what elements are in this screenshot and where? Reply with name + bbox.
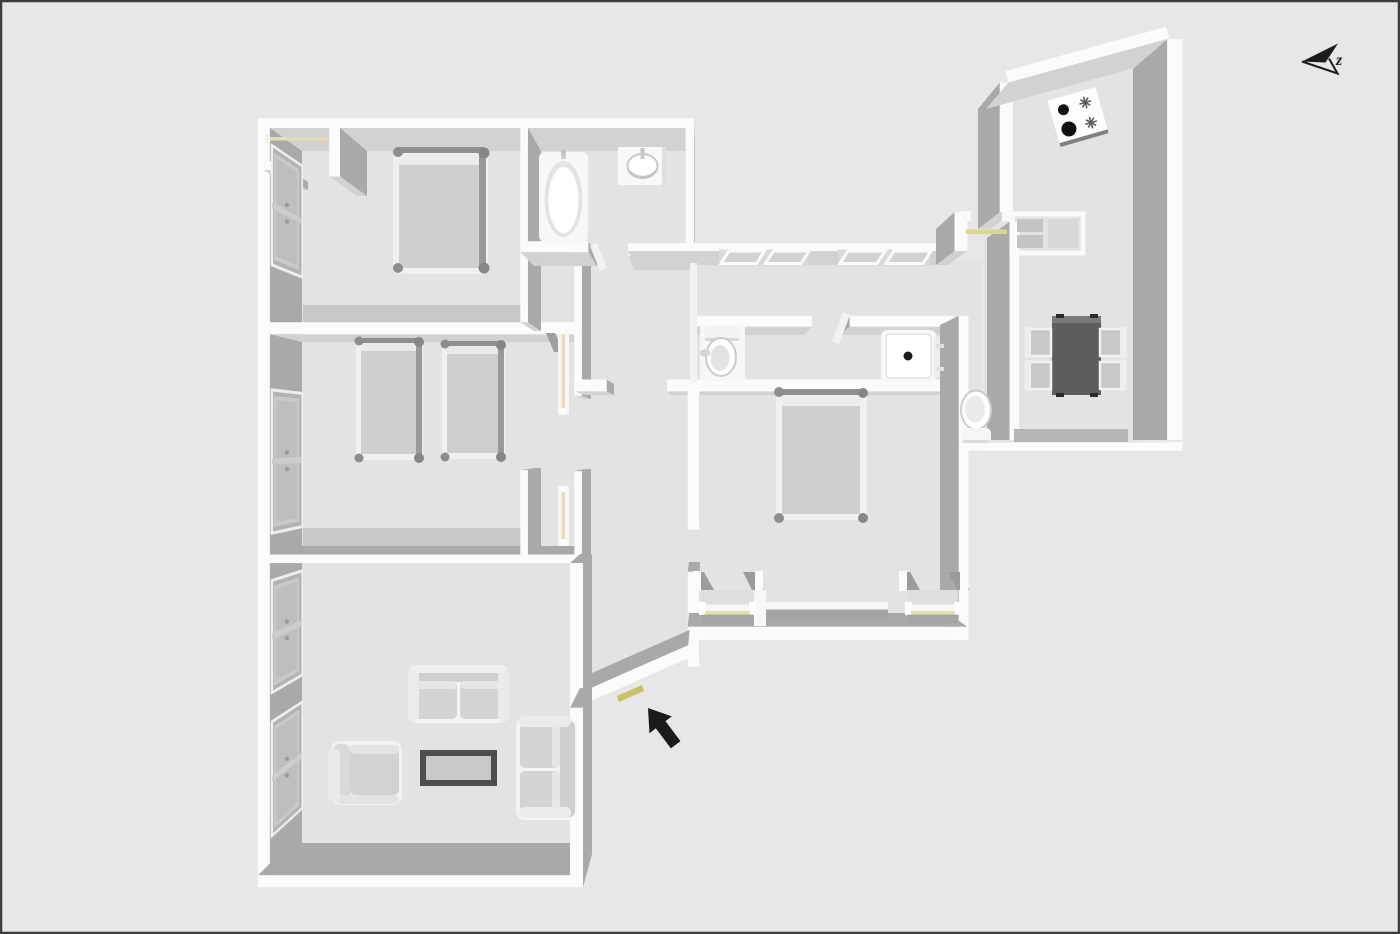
svg-text:z: z <box>1335 52 1343 69</box>
